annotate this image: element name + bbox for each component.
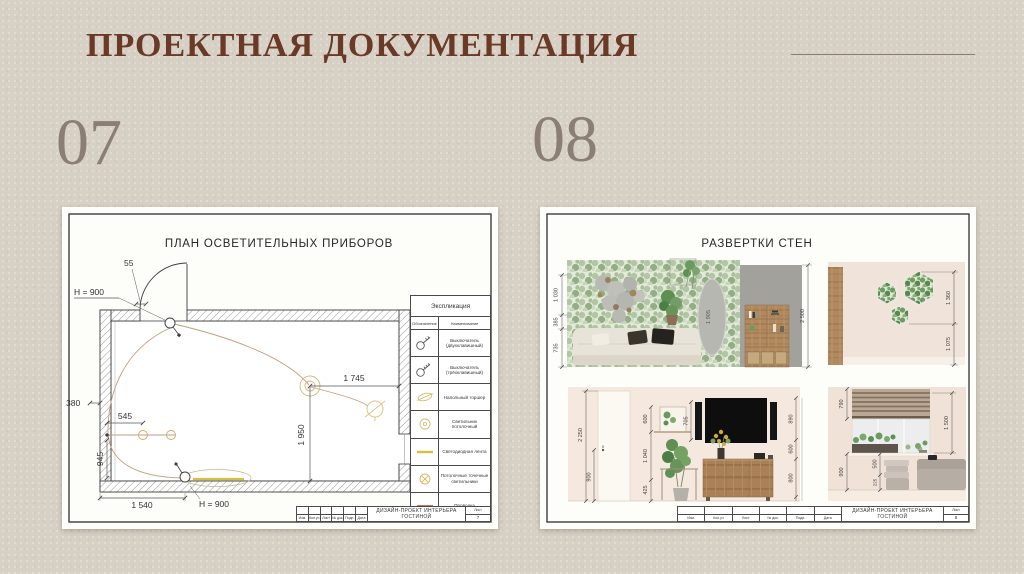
stamp-col-label: № док. [332, 515, 344, 522]
dim-600-shelf: 600 [643, 414, 649, 423]
stamp-col-label: Лист [733, 515, 760, 522]
header-divider-line [791, 54, 975, 55]
dim-1745: 1 745 [343, 373, 365, 383]
legend-title: Экспликация [411, 296, 490, 317]
dim-h900-top: H = 900 [74, 287, 104, 297]
dim-945: 945 [95, 452, 105, 466]
dim-380: 380 [66, 398, 80, 408]
stamp-col-label: Лист [321, 515, 333, 522]
dim-55: 55 [124, 258, 134, 268]
dim-385: 385 [554, 317, 560, 326]
wall-elevations-drawing: РАЗВЕРТКИ СТЕН [540, 207, 976, 529]
dim-2500: 2 500 [800, 309, 806, 323]
windowsill [848, 453, 934, 456]
dim-225: 225 [873, 478, 878, 486]
dim-790: 790 [839, 399, 845, 408]
legend-label: Выключатель (двухклавишный) [439, 330, 490, 356]
dim-735: 735 [554, 343, 560, 352]
legend-row: Потолочные точечные светильники [411, 466, 490, 493]
panel-number-08: 08 [532, 107, 598, 173]
dim-705: 705 [684, 416, 690, 425]
dim-500: 500 [873, 459, 879, 468]
legend-row: Выключатель (двухклавишный) [411, 330, 490, 357]
dim-1905: 1 905 [706, 310, 712, 324]
stamp-col-label: № док. [760, 515, 787, 522]
dim-1360: 1 360 [946, 291, 952, 305]
hex-planter-medium [878, 282, 897, 304]
legend-label: Потолочные точечные светильники [439, 466, 490, 492]
switch-2gang-icon [411, 330, 439, 356]
sheet-lighting-plan: ПЛАН ОСВЕТИТЕЛЬНЫХ ПРИБОРОВ [62, 207, 498, 529]
elevation-window-wall: 790 900 1 500 500 225 [828, 387, 966, 501]
speaker-left [695, 402, 702, 440]
dim-1030: 1 030 [554, 288, 560, 302]
stamp-sheet-number: 7 [466, 515, 490, 522]
drawing-title: РАЗВЕРТКИ СТЕН [701, 238, 812, 250]
room-walls [100, 310, 411, 492]
floor-lamp-icon [411, 384, 439, 410]
presentation-slide: ПРОЕКТНАЯ ДОКУМЕНТАЦИЯ 07 08 ПЛАН ОСВЕТИ… [0, 0, 1024, 574]
dim-1075: 1 075 [946, 337, 952, 351]
stamp-sheet-box: Лист 7 [465, 507, 490, 521]
stamp-grid: Изм. Кол.уч Лист № док. Подп. Дата [678, 507, 842, 521]
elevation-hex-wall: 1 360 1 075 [828, 262, 965, 367]
sofa-corner [884, 455, 966, 490]
stamp-grid: Изм. Кол.уч Лист № док. Подп. Дата [297, 507, 368, 521]
decor-item [768, 455, 773, 459]
dim-890: 890 [789, 414, 795, 423]
legend-label: Светильник потолочный [439, 411, 490, 437]
oval-mirror [698, 279, 726, 355]
panel-number-07: 07 [56, 110, 122, 176]
led-strip-icon [411, 439, 439, 465]
spot-lights-icon [411, 466, 439, 492]
dim-425: 425 [643, 485, 649, 494]
dim-600-gap: 600 [789, 444, 795, 453]
stamp-col-label: Дата [815, 515, 841, 522]
stamp-col-label: Подп. [344, 515, 356, 522]
hex-planter-small [891, 305, 908, 325]
legend-row: Напольный торшер [411, 384, 490, 411]
stamp-col-label: Кол.уч [309, 515, 321, 522]
switch-3gang-icon [411, 357, 439, 383]
legend-row: Выключатель (трёхклавишный) [411, 357, 490, 384]
dim-545: 545 [118, 411, 132, 421]
roman-blind [852, 389, 930, 419]
legend-col-symbol: Обозначение [411, 317, 439, 329]
sofa [573, 328, 701, 365]
legend-row: Светодиодная лента [411, 439, 490, 466]
stamp-sheet-word: Лист [466, 507, 490, 515]
stamp-col-label: Кол.уч [705, 515, 732, 522]
dim-900-sill: 900 [839, 467, 845, 476]
title-block: Изм. Кол.уч Лист № док. Подп. Дата ДИЗАЙ… [296, 506, 491, 522]
stamp-sheet-box: Лист 8 [943, 507, 968, 521]
stamp-sheet-number: 8 [944, 515, 968, 522]
sheet-wall-elevations: РАЗВЕРТКИ СТЕН [540, 207, 976, 529]
speaker-right [770, 402, 777, 440]
stamp-project-name: ДИЗАЙН-ПРОЕКТ ИНТЕРЬЕРА ГОСТИНОЙ [842, 507, 943, 521]
legend-row: Светильник потолочный [411, 411, 490, 438]
decor-item [754, 453, 765, 459]
page-title: ПРОЕКТНАЯ ДОКУМЕНТАЦИЯ [86, 27, 639, 65]
legend-table: Экспликация Обозначение Наименование Вык… [410, 295, 491, 520]
stamp-col-label: Дата [356, 515, 367, 522]
title-block: Изм. Кол.уч Лист № док. Подп. Дата ДИЗАЙ… [677, 506, 969, 522]
dim-1500: 1 500 [944, 416, 950, 430]
legend-label: Выключатель (трёхклавишный) [439, 357, 490, 383]
legend-label: Светодиодная лента [439, 439, 490, 465]
dim-900: 900 [587, 472, 593, 481]
drawing-title: ПЛАН ОСВЕТИТЕЛЬНЫХ ПРИБОРОВ [165, 238, 393, 250]
wood-panel [828, 267, 843, 365]
legend-header-row: Обозначение Наименование [411, 317, 490, 330]
window-opening [398, 434, 410, 464]
dim-800: 800 [789, 473, 795, 482]
stamp-col-label: Подп. [787, 515, 814, 522]
dim-1540: 1 540 [131, 500, 153, 510]
dresser [703, 459, 773, 501]
dim-2250: 2 250 [578, 428, 584, 442]
legend-label: Напольный торшер [439, 384, 490, 410]
stamp-col-label: Изм. [297, 515, 309, 522]
stamp-sheet-word: Лист [944, 507, 968, 515]
shelving-unit [745, 305, 789, 367]
stamp-project-name: ДИЗАЙН-ПРОЕКТ ИНТЕРЬЕРА ГОСТИНОЙ [368, 507, 465, 521]
dim-1950: 1 950 [296, 424, 306, 446]
dim-1040: 1 040 [643, 449, 649, 463]
stamp-col-label: Изм. [678, 515, 705, 522]
ceiling-light-icon [411, 411, 439, 437]
legend-col-name: Наименование [439, 317, 490, 329]
dim-h900-bottom: H = 900 [199, 499, 229, 509]
elevation-living-wall: 1 905 1 030 385 735 2 500 [554, 259, 813, 369]
elevation-tv-wall: 2 250 900 600 1 040 425 705 890 600 [568, 387, 802, 503]
